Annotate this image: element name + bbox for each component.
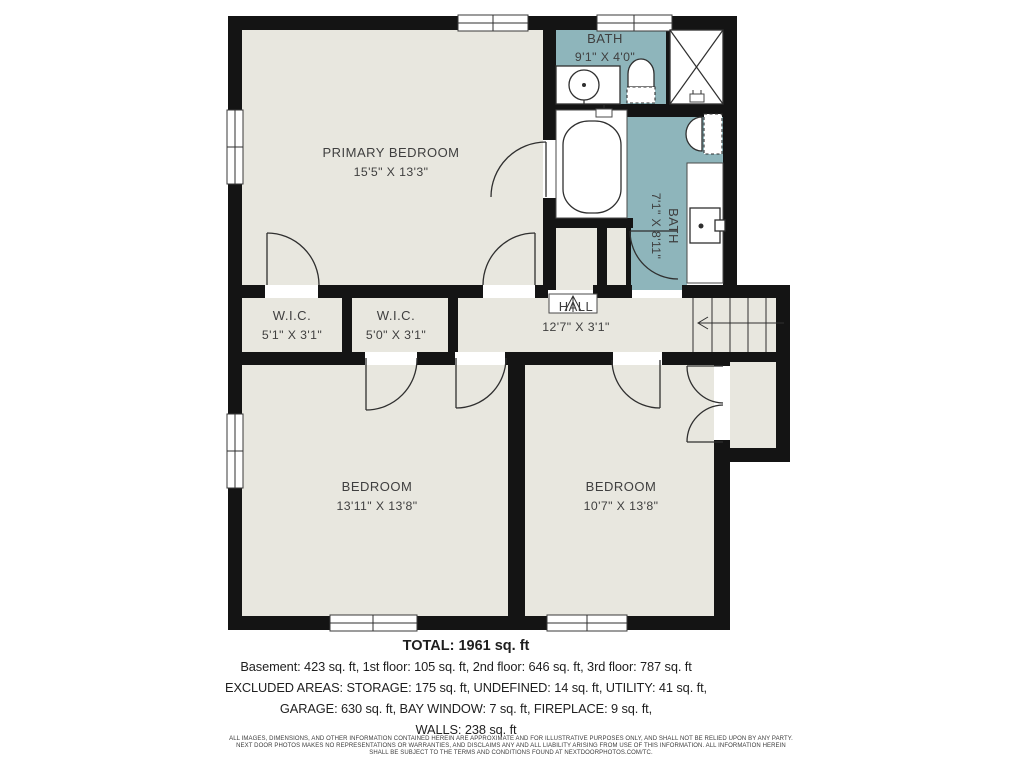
toilet-icon: [627, 59, 655, 103]
disclaimer-line-3: SHALL BE SUBJECT TO THE TERMS AND CONDIT…: [0, 750, 1022, 757]
dims-bath-ensuite: 7'1" X 8'11": [649, 193, 663, 260]
room-wic-1: [242, 298, 342, 352]
window-left-bedroom: [227, 414, 243, 488]
dims-primary-bedroom: 15'5" X 13'3": [354, 165, 429, 179]
room-closet-nook: [730, 362, 776, 448]
dims-wic-1: 5'1" X 3'1": [262, 328, 322, 342]
disclaimer: ALL IMAGES, DIMENSIONS, AND OTHER INFORM…: [0, 736, 1022, 757]
window-bottom-bedroom-right: [547, 615, 627, 631]
room-linen-closet: [607, 228, 626, 290]
room-hall: [458, 298, 776, 352]
floor-areas: Basement: 423 sq. ft, 1st floor: 105 sq.…: [0, 656, 932, 677]
label-bedroom-right: BEDROOM: [586, 479, 657, 494]
shower-icon: [670, 30, 723, 104]
dims-hall: 12'7" X 3'1": [542, 320, 609, 334]
window-bottom-bedroom-left: [330, 615, 417, 631]
dims-wic-2: 5'0" X 3'1": [366, 328, 426, 342]
total-area: TOTAL: 1961 sq. ft: [0, 636, 932, 656]
room-vestibule: [556, 228, 597, 290]
label-wic-1: W.I.C.: [273, 308, 311, 323]
area-summary: TOTAL: 1961 sq. ft Basement: 423 sq. ft,…: [0, 636, 932, 740]
label-bath-ensuite: BATH: [666, 208, 681, 244]
window-top-bath: [597, 15, 672, 31]
label-hall: HALL: [559, 299, 594, 314]
label-wic-2: W.I.C.: [377, 308, 415, 323]
floor-plan-page: PRIMARY BEDROOM 15'5" X 13'3" BATH 9'1" …: [0, 0, 1024, 768]
dims-bedroom-right: 10'7" X 13'8": [584, 499, 659, 513]
room-wic-2: [352, 298, 448, 352]
excluded-areas-2: GARAGE: 630 sq. ft, BAY WINDOW: 7 sq. ft…: [0, 698, 932, 719]
excluded-areas-1: EXCLUDED AREAS: STORAGE: 175 sq. ft, UND…: [0, 677, 932, 698]
sink-vanity-icon: [687, 163, 725, 283]
label-bedroom-left: BEDROOM: [342, 479, 413, 494]
window-left-primary: [227, 110, 243, 184]
disclaimer-line-2: NEXT DOOR PHOTOS MAKES NO REPRESENTATION…: [0, 743, 1022, 750]
window-top-primary: [458, 15, 528, 31]
disclaimer-line-1: ALL IMAGES, DIMENSIONS, AND OTHER INFORM…: [0, 736, 1022, 743]
sink-vanity-icon: [556, 66, 620, 104]
dims-bath-top: 9'1" X 4'0": [575, 50, 635, 64]
dims-bedroom-left: 13'11" X 13'8": [336, 499, 417, 513]
label-primary-bedroom: PRIMARY BEDROOM: [322, 145, 459, 160]
label-bath-top: BATH: [587, 31, 623, 46]
